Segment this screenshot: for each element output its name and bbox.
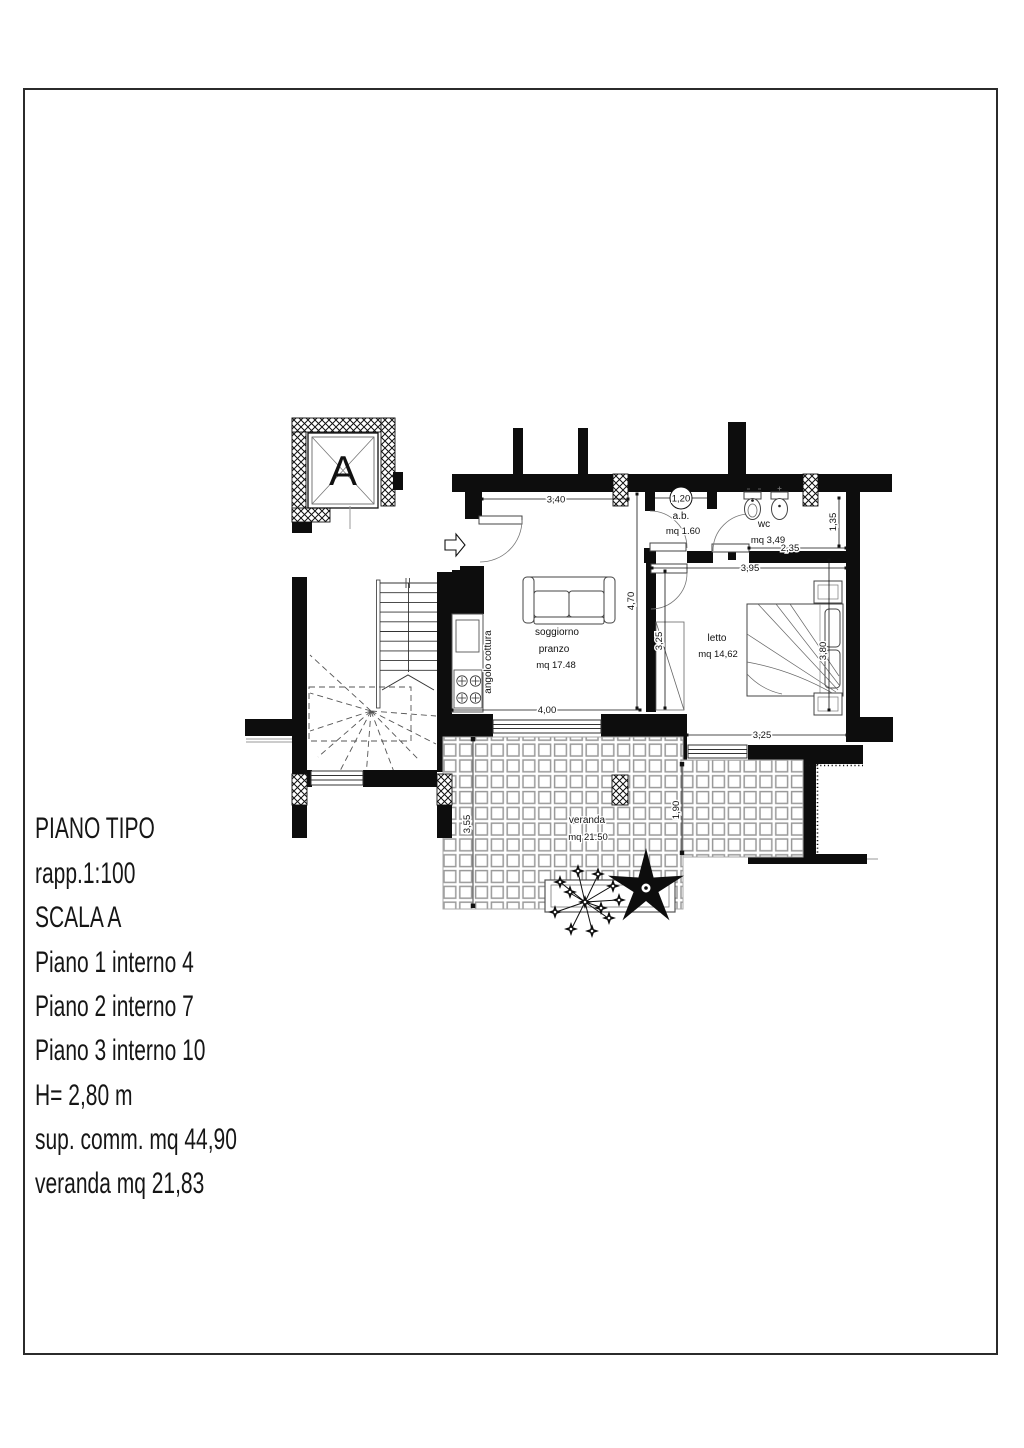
east-wall bbox=[846, 474, 860, 742]
north-wall bbox=[452, 474, 892, 492]
window-letto bbox=[688, 745, 747, 758]
stair-winder-rays bbox=[310, 655, 436, 777]
stair-spine bbox=[377, 580, 381, 708]
dim-1-90: 1,90 bbox=[671, 801, 682, 820]
wc-door bbox=[712, 514, 750, 552]
elevator-corner-block bbox=[292, 522, 312, 533]
dim-3-40: 3,40 bbox=[547, 495, 566, 506]
kitchen-sink bbox=[456, 620, 479, 652]
title-sup-comm: sup. comm. mq 44,90 bbox=[35, 1123, 237, 1157]
dim-4-00: 4,00 bbox=[538, 705, 557, 716]
letto-door bbox=[651, 564, 687, 609]
sofa bbox=[523, 577, 615, 624]
label-soggiorno: soggiorno bbox=[535, 627, 579, 638]
entry-arrow-icon bbox=[445, 534, 465, 556]
title-piano-3: Piano 3 interno 10 bbox=[35, 1034, 205, 1068]
dim-2-35: 2,35 bbox=[781, 543, 800, 554]
elevator-door-jamb bbox=[393, 472, 403, 490]
dim-3-55: 3,55 bbox=[462, 815, 473, 834]
dim-4-70: 4,70 bbox=[626, 592, 637, 611]
stair-treads bbox=[380, 583, 437, 672]
label-ab: a.b. bbox=[673, 511, 690, 522]
area-soggiorno: mq 17.48 bbox=[536, 660, 576, 671]
elevator-shaft: A bbox=[292, 418, 403, 533]
column-north-1 bbox=[613, 474, 628, 506]
column-north-2 bbox=[803, 474, 818, 506]
column-veranda-mid bbox=[612, 775, 628, 805]
west-wall-upper bbox=[465, 487, 482, 519]
stair-direction-mark bbox=[382, 675, 434, 690]
title-scala: SCALA A bbox=[35, 901, 121, 935]
north-wall-stub-1 bbox=[513, 428, 523, 474]
column-stair-east bbox=[437, 774, 452, 805]
veranda-east-wall bbox=[803, 764, 816, 857]
title-piano-1: Piano 1 interno 4 bbox=[35, 946, 194, 980]
entry-door bbox=[445, 516, 522, 562]
area-letto: mq 14,62 bbox=[698, 649, 738, 660]
dim-1-20: 1,20 bbox=[672, 494, 691, 505]
kitchen-step-wall bbox=[452, 570, 484, 614]
party-wall-stub bbox=[728, 422, 746, 474]
southeast-corner-wall bbox=[846, 717, 893, 742]
title-rapporto: rapp.1:100 bbox=[35, 857, 135, 891]
title-piano-tipo: PIANO TIPO bbox=[35, 812, 155, 846]
area-ab: mq 1.60 bbox=[666, 526, 700, 537]
toilet-icon bbox=[744, 489, 761, 520]
title-piano-2: Piano 2 interno 7 bbox=[35, 990, 194, 1024]
label-wc: wc bbox=[757, 519, 770, 530]
label-veranda: veranda bbox=[569, 815, 606, 826]
label-letto: letto bbox=[708, 633, 727, 644]
floor-plan-drawing: A bbox=[0, 0, 1024, 1448]
dim-3-25-west: 3,25 bbox=[654, 632, 665, 651]
window-soggiorno bbox=[493, 720, 601, 733]
stair-west-wall bbox=[292, 577, 307, 774]
title-veranda-mq: veranda mq 21,83 bbox=[35, 1167, 204, 1201]
dim-3-95: 3,95 bbox=[741, 563, 760, 574]
dim-3-25-south: 3,25 bbox=[753, 730, 772, 741]
title-altezza: H= 2,80 m bbox=[35, 1079, 132, 1113]
column-stair-west bbox=[292, 774, 307, 805]
west-balcony-stub bbox=[245, 719, 292, 736]
stair-letter-label: A bbox=[329, 447, 357, 494]
stairwell bbox=[245, 577, 452, 838]
north-wall-stub-2 bbox=[578, 428, 588, 474]
dim-1-35: 1,35 bbox=[828, 513, 839, 532]
drawing-sheet: A bbox=[0, 0, 1024, 1448]
label-angolo-cottura: angolo cottura bbox=[483, 630, 494, 694]
kitchen-counter bbox=[452, 614, 483, 712]
area-veranda: mq 21.50 bbox=[568, 832, 608, 843]
stair-window bbox=[311, 771, 363, 785]
dim-3-80: 3,80 bbox=[818, 642, 829, 661]
label-pranzo: pranzo bbox=[539, 644, 570, 655]
